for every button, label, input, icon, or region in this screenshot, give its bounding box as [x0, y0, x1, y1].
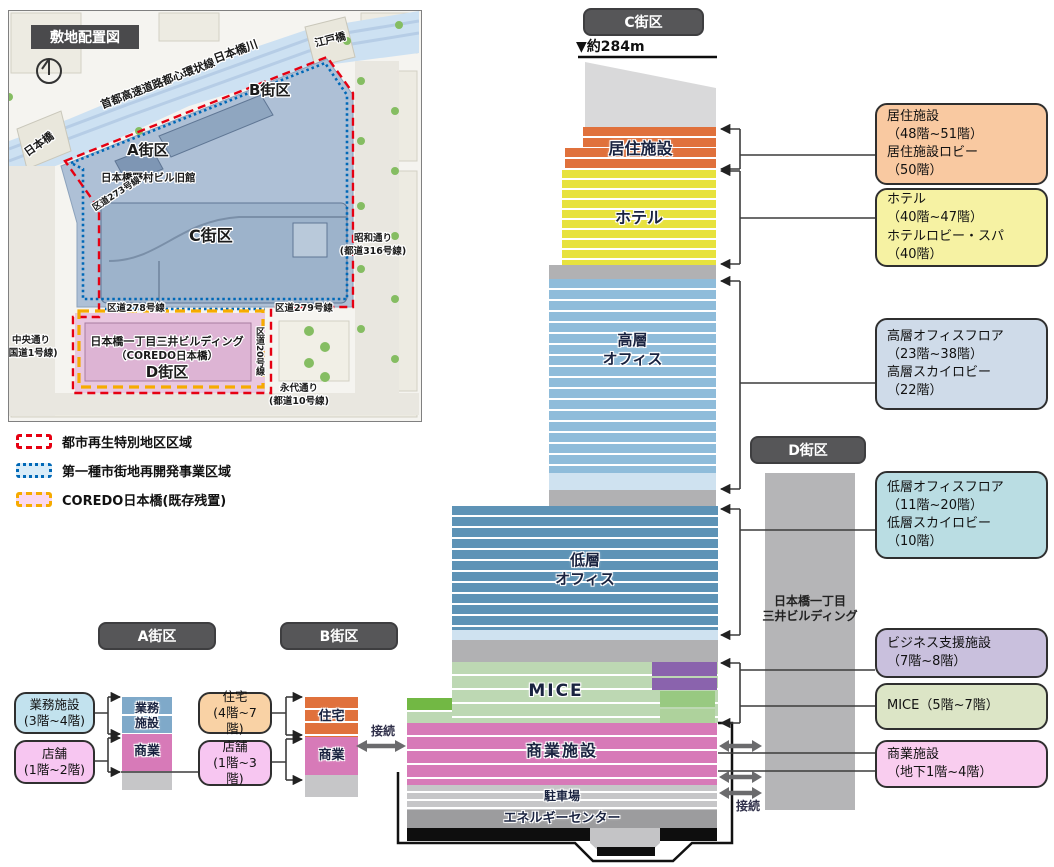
callout-business-support: ビジネス支援施設 （7階~8階） — [875, 628, 1048, 678]
label-eitai-dori-sub: (都道10号線) — [269, 395, 329, 407]
callout-a-office: 業務施設 (3階~4階) — [14, 692, 95, 734]
height-label: ▼約284m — [576, 36, 645, 56]
label-block-b: B街区 — [249, 81, 290, 99]
deep-basement-band — [597, 847, 655, 856]
callout-mice: MICE（5階~7階） — [875, 683, 1048, 730]
callout-high-office: 高層オフィスフロア （23階~38階） 高層スカイロビー （22階） — [875, 318, 1048, 410]
low-sky-lobby-band — [452, 630, 718, 640]
callout-a-shop: 店舗 (1階~2階) — [14, 740, 95, 784]
callout-low-office: 低層オフィスフロア （11階~20階） 低層スカイロビー （10階） — [875, 471, 1048, 559]
callout-commercial: 商業施設 （地下1階~4階） — [875, 740, 1048, 788]
connection-arrow-bc — [356, 740, 406, 752]
bracket-b-house — [272, 697, 302, 735]
legend-label: COREDO日本橋(既存残置) — [62, 490, 226, 509]
orange-dashed-swatch — [16, 492, 52, 507]
connection-arrow-cd-1 — [719, 740, 762, 752]
connection-label-bc: 接続 — [358, 722, 408, 739]
site-map-panel: 首都高速道路都心環状線 日本橋川 江戸橋 日本橋 B街区 A街区 日本橋野村ビル… — [8, 10, 422, 422]
label-showa-dori: 昭和通り — [354, 232, 392, 244]
connection-label-cd: 接続 — [722, 797, 774, 814]
block-d-header: D街区 — [750, 436, 866, 464]
section-high-office-label: 高層 オフィス — [549, 300, 716, 400]
chuo-dori-road — [9, 166, 55, 416]
block-a-header: A街区 — [98, 622, 216, 650]
tower-a-office-label: 業務 施設 — [122, 697, 172, 734]
eitai-dori-road — [9, 393, 419, 415]
bracket-a-office — [95, 697, 120, 734]
block-c-court — [293, 223, 327, 257]
tower-b-basement — [305, 775, 358, 797]
label-mitsui-bldg: 日本橋一丁目三井ビルディング — [90, 334, 243, 348]
basement-notch — [590, 828, 660, 856]
page: 首都高速道路都心環状線 日本橋川 江戸橋 日本橋 B街区 A街区 日本橋野村ビル… — [0, 0, 1054, 867]
section-parking-label: 駐車場 — [407, 786, 717, 806]
red-dashed-swatch — [16, 434, 52, 449]
block-b-header: B街区 — [280, 622, 398, 650]
callout-b-shop: 店舗 (1階~3階) — [198, 740, 272, 786]
tower-a-commercial-label: 商業 — [122, 734, 172, 771]
tower-a-basement — [122, 771, 172, 790]
label-chuo-dori: 中央通り — [12, 334, 50, 346]
tower-b-house-label: 住宅 — [305, 697, 358, 737]
label-kudo278: 区道278号線 — [107, 302, 165, 314]
basement-band-left — [407, 828, 590, 841]
bracket-hotel — [721, 171, 875, 264]
basement-band-right — [660, 828, 717, 841]
section-energy-label: エネルギーセンター — [407, 809, 717, 829]
mechanical-band-1 — [549, 265, 716, 279]
label-kudo279: 区道279号線 — [275, 302, 333, 314]
label-nomura-bldg: 日本橋野村ビル旧館 — [101, 171, 196, 184]
tower-crown — [585, 62, 716, 127]
legend-item-special-district: 都市再生特別地区区域 — [16, 432, 192, 451]
blue-dotted-swatch — [16, 463, 52, 478]
business-support-band-2 — [652, 678, 717, 690]
section-low-office-label: 低層 オフィス — [452, 530, 718, 610]
callout-b-house: 住宅 (4階~7階) — [198, 692, 272, 734]
section-residential-label: 居住施設 — [565, 127, 716, 170]
legend-label: 第一種市街地再開発事業区域 — [62, 461, 231, 480]
mice-left-green-band — [407, 698, 452, 710]
legend-label: 都市再生特別地区区域 — [62, 432, 192, 451]
tower-b-commercial-label: 商業 — [305, 737, 358, 775]
tower-d-name: 日本橋一丁目 三井ビルディング — [760, 585, 860, 633]
section-hotel-label: ホテル — [562, 170, 716, 265]
tower-d — [765, 473, 855, 810]
bracket-residential — [721, 129, 875, 169]
label-kudo20: 区道20号線 — [254, 327, 265, 377]
mice-right-band-1 — [660, 691, 715, 707]
section-mice-label: MICE — [452, 678, 660, 706]
map-title: 敷地配置図 — [31, 25, 139, 49]
mechanical-band-2 — [549, 490, 716, 506]
section-commercial-label: 商業施設 — [407, 736, 717, 766]
block-c-header: C街区 — [583, 8, 704, 36]
callout-hotel: ホテル （40階~47階） ホテルロビー・スパ （40階） — [875, 188, 1048, 267]
bracket-b-shop — [272, 739, 302, 780]
label-chuo-dori-sub: (国道1号線) — [9, 347, 58, 359]
label-eitai-dori: 永代通り — [279, 382, 318, 394]
connection-arrow-cd-2 — [719, 771, 762, 783]
mice-left-band — [407, 712, 452, 723]
mice-right-band-2 — [660, 709, 715, 723]
label-block-c: C街区 — [189, 226, 233, 245]
site-map: 首都高速道路都心環状線 日本橋川 江戸橋 日本橋 B街区 A街区 日本橋野村ビル… — [9, 11, 419, 419]
callout-residential: 居住施設 （48階~51階） 居住施設ロビー （50階） — [875, 103, 1048, 185]
label-mitsui-bldg-sub: （COREDO日本橋） — [116, 349, 218, 362]
business-support-band-1 — [652, 662, 717, 676]
legend-item-coredo: COREDO日本橋(既存残置) — [16, 490, 226, 509]
legend-item-redevelopment: 第一種市街地再開発事業区域 — [16, 461, 231, 480]
label-block-d: D街区 — [146, 363, 188, 381]
label-block-a: A街区 — [127, 141, 169, 159]
label-showa-dori-sub: (都道316号線) — [340, 245, 407, 257]
mechanical-band-3 — [452, 640, 718, 662]
high-sky-lobby-band — [549, 473, 716, 490]
